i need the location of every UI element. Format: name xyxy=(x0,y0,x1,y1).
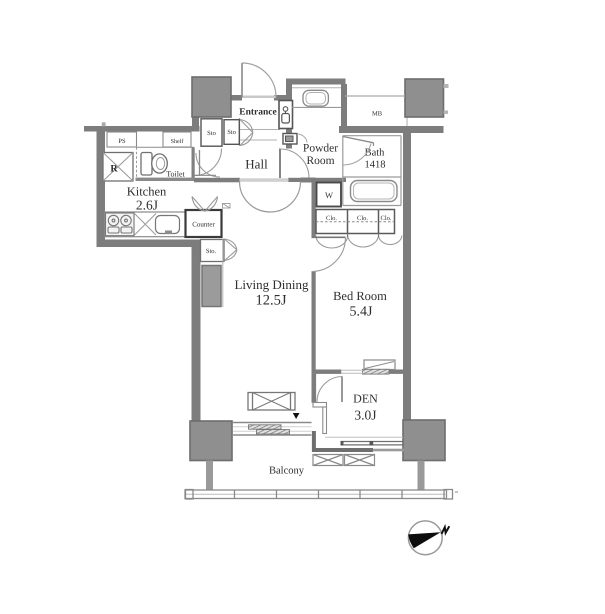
svg-text:Bath: Bath xyxy=(365,148,386,159)
svg-text:Clo.: Clo. xyxy=(380,215,391,222)
svg-text:Shelf: Shelf xyxy=(171,138,184,145)
svg-text:PS: PS xyxy=(118,138,126,145)
svg-text:3.0J: 3.0J xyxy=(354,408,376,423)
svg-text:Bed Room: Bed Room xyxy=(333,289,387,303)
svg-text:Balcony: Balcony xyxy=(269,466,305,477)
svg-text:Kitchen: Kitchen xyxy=(127,185,167,199)
svg-text:Entrance: Entrance xyxy=(239,108,276,118)
svg-text:Clo.: Clo. xyxy=(357,215,368,222)
svg-text:Living Dining: Living Dining xyxy=(234,277,309,292)
svg-text:Clo.: Clo. xyxy=(326,215,337,222)
svg-text:12.5J: 12.5J xyxy=(255,293,286,309)
svg-text:Sto: Sto xyxy=(207,130,216,137)
svg-text:Hall: Hall xyxy=(245,157,268,172)
svg-text:W: W xyxy=(325,190,333,200)
svg-text:Sto: Sto xyxy=(227,129,236,136)
svg-text:Toilet: Toilet xyxy=(166,170,185,179)
svg-text:Sto.: Sto. xyxy=(206,248,217,255)
svg-text:R: R xyxy=(110,164,118,175)
svg-text:Powder: Powder xyxy=(303,143,338,155)
svg-text:5.4J: 5.4J xyxy=(350,305,374,320)
svg-text:2.6J: 2.6J xyxy=(136,198,158,213)
svg-text:1418: 1418 xyxy=(365,160,386,171)
svg-text:MB: MB xyxy=(372,111,383,118)
svg-text:Room: Room xyxy=(306,155,334,167)
svg-text:DEN: DEN xyxy=(353,392,378,406)
svg-text:Counter: Counter xyxy=(192,221,215,229)
